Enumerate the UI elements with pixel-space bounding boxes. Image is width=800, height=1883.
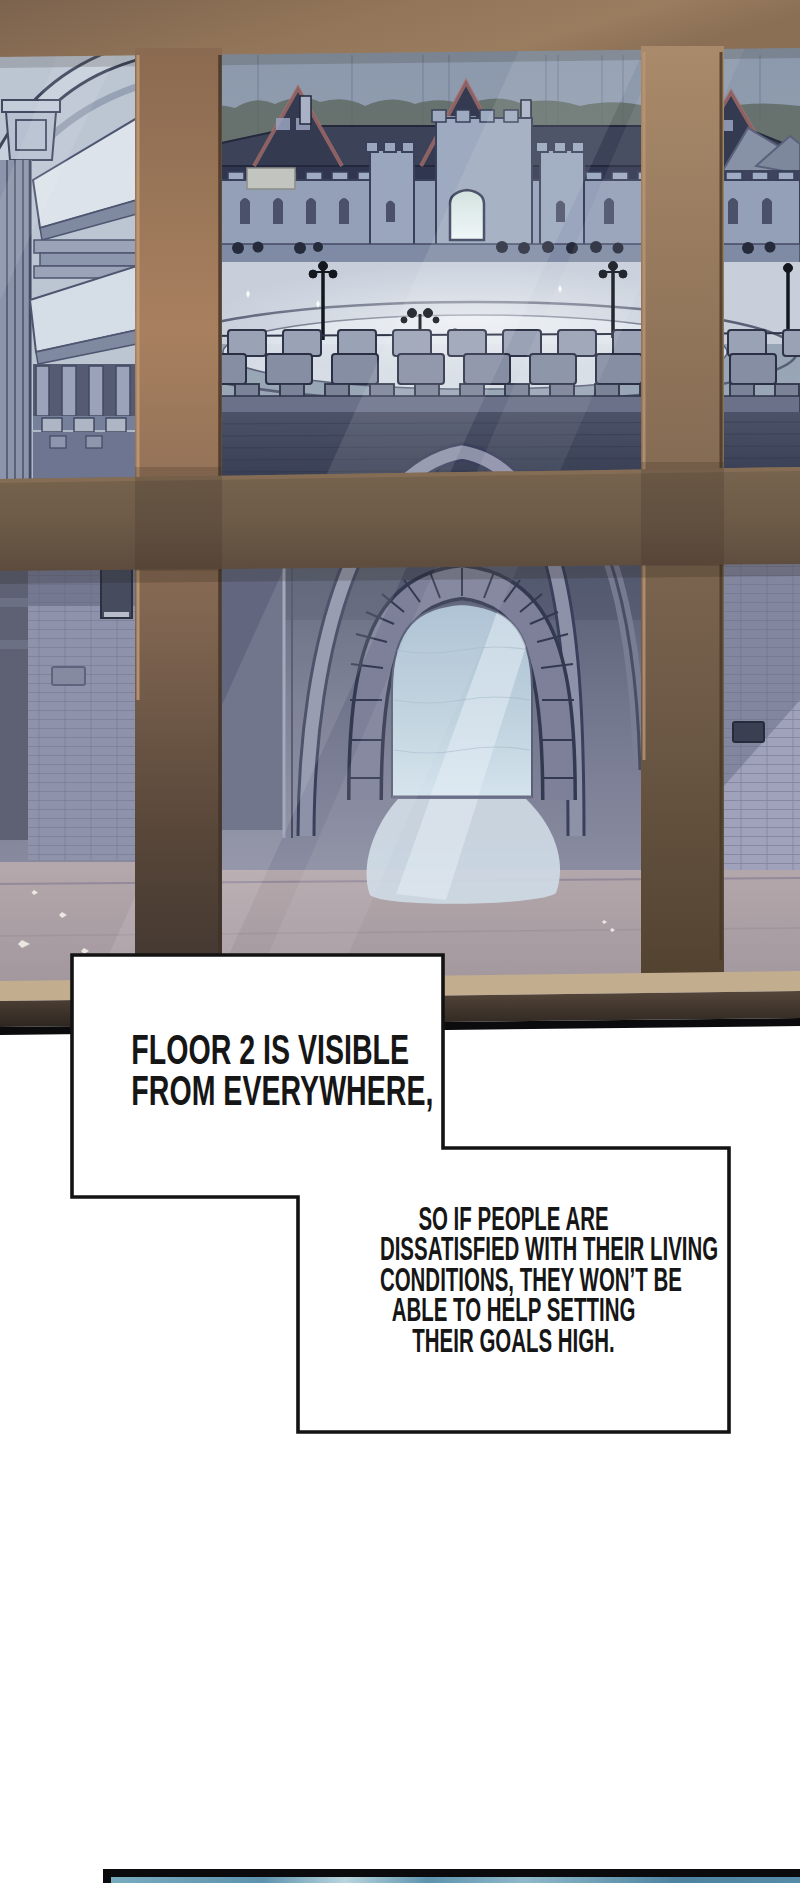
chimney [300, 96, 311, 124]
comic-page: FLOOR 2 IS VISIBLE FROM EVERYWHERE, SO I… [0, 0, 800, 1883]
next-panel-preview [103, 1869, 800, 1883]
left-brick-wall [0, 560, 138, 860]
bubble-line: FLOOR 2 IS VISIBLE [131, 1029, 383, 1070]
speech-bubble-2-text: SO IF PEOPLE ARE DISSATISFIED WITH THEIR… [380, 1204, 647, 1356]
speech-bubbles [0, 940, 800, 1460]
bubble-line: FROM EVERYWHERE, [131, 1070, 383, 1111]
speech-bubble-1-text: FLOOR 2 IS VISIBLE FROM EVERYWHERE, [131, 1029, 383, 1111]
wall-plaque [52, 667, 85, 685]
wall-banner-sign [247, 168, 295, 189]
bubble-line: THEIR GOALS HIGH. [380, 1326, 647, 1356]
wall-plaque-right [733, 722, 764, 742]
window-scene-illustration [0, 0, 800, 1040]
arcade-columns [33, 364, 137, 416]
next-panel-art [111, 1877, 800, 1883]
block-row [33, 416, 137, 482]
